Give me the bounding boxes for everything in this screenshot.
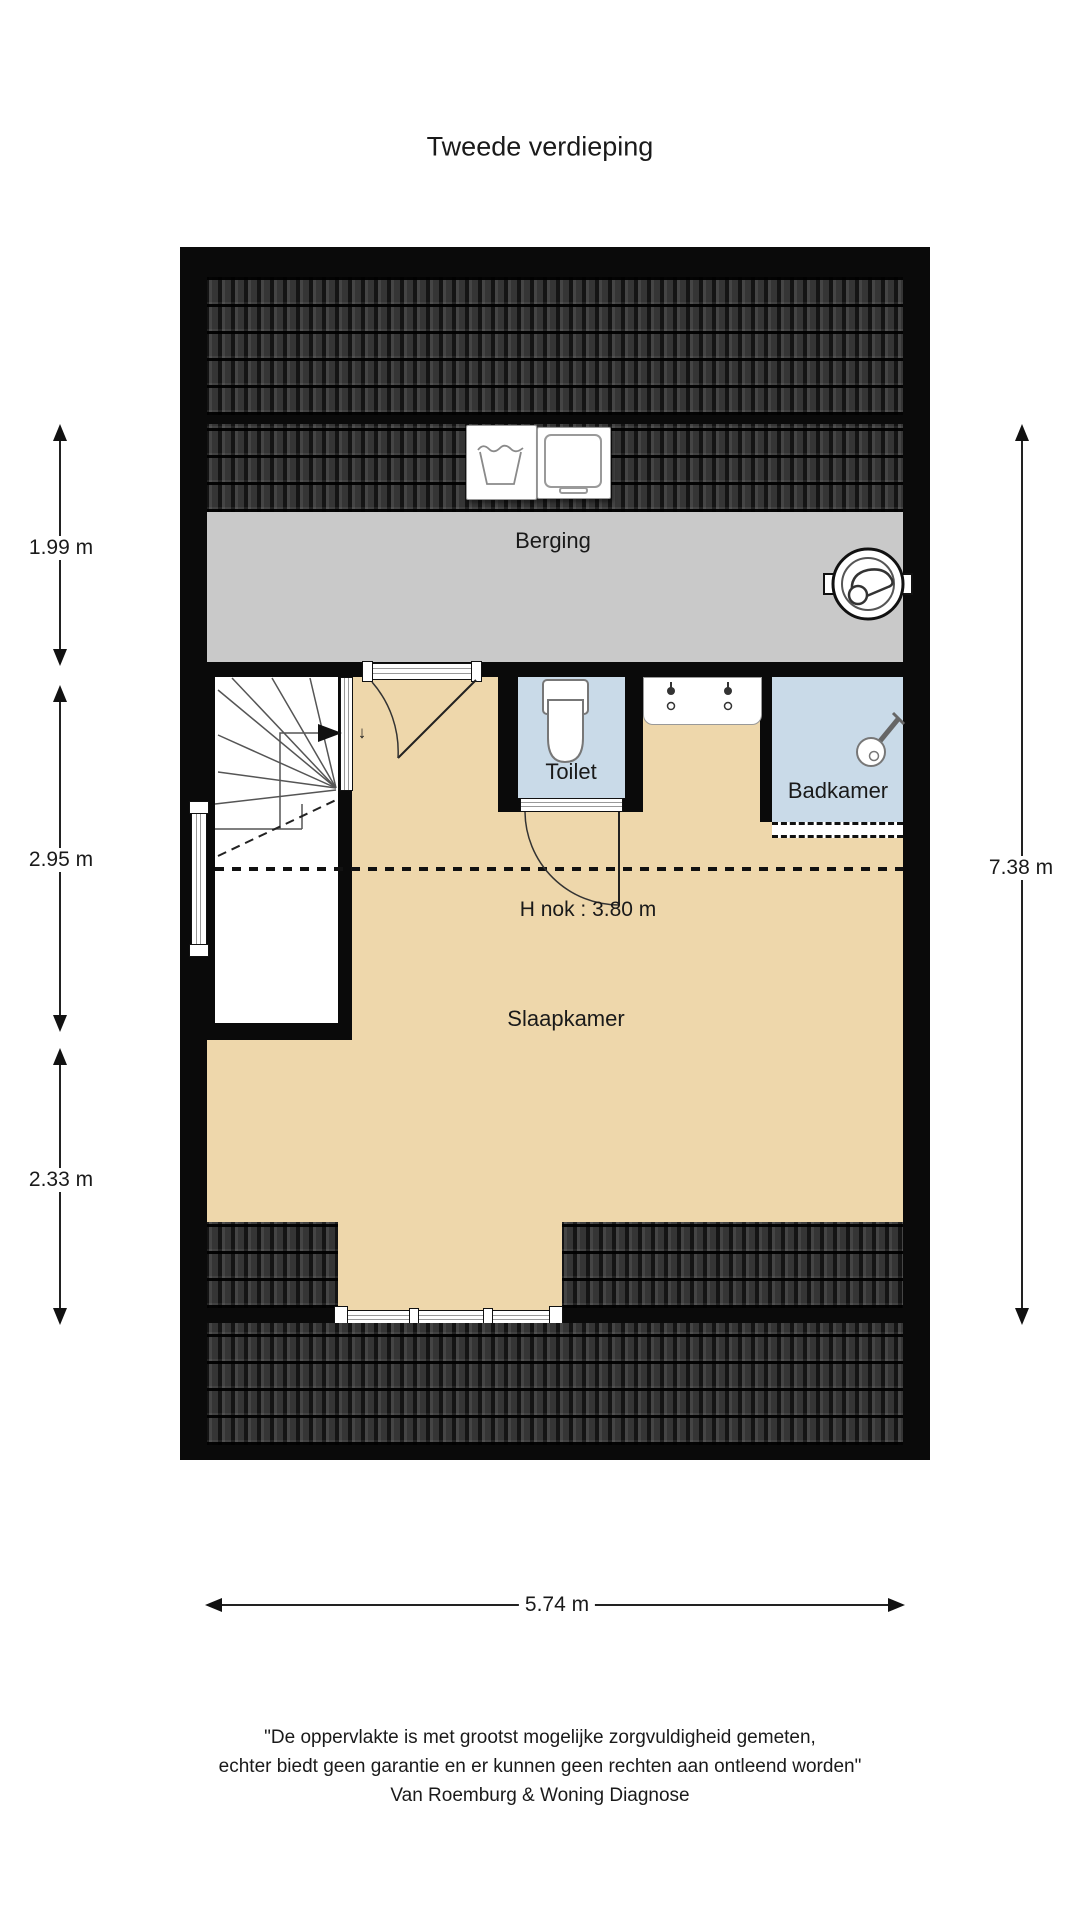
- washbasin-taps-icon: [667, 682, 732, 710]
- dimension-label-574: 5.74 m: [519, 1593, 595, 1617]
- toilet-door-swing: [525, 812, 619, 905]
- floorplan-page: Tweede verdieping: [0, 0, 1080, 1920]
- room-label-toilet: Toilet: [545, 759, 596, 785]
- washing-machine-symbol: [478, 446, 523, 484]
- room-label-badkamer: Badkamer: [788, 778, 888, 804]
- dimension-label-738: 7.38 m: [983, 856, 1059, 880]
- dimension-label-199: 1.99 m: [23, 536, 99, 560]
- stairs-icon: [215, 678, 336, 856]
- stairs-down-arrow: ↓: [358, 723, 367, 743]
- dimension-label-233: 2.33 m: [23, 1168, 99, 1192]
- disclaimer-line-2: echter biedt geen garantie en er kunnen …: [0, 1752, 1080, 1781]
- dimension-label-295: 2.95 m: [23, 848, 99, 872]
- stairs-walkline-arrow: [318, 724, 342, 742]
- shower-icon: [857, 713, 904, 766]
- toilet-icon: [543, 680, 588, 762]
- mv-unit-icon: [824, 549, 912, 619]
- room-label-slaapkamer: Slaapkamer: [507, 1006, 624, 1032]
- landing-door-swing: [372, 680, 476, 758]
- dryer-symbol: [545, 435, 601, 493]
- plan-vector-overlay: [0, 0, 1080, 1920]
- ridge-height-label: H nok : 3.80 m: [520, 898, 657, 922]
- disclaimer-line-1: "De oppervlakte is met grootst mogelijke…: [0, 1723, 1080, 1752]
- disclaimer-line-3: Van Roemburg & Woning Diagnose: [0, 1781, 1080, 1810]
- room-label-berging: Berging: [515, 528, 591, 554]
